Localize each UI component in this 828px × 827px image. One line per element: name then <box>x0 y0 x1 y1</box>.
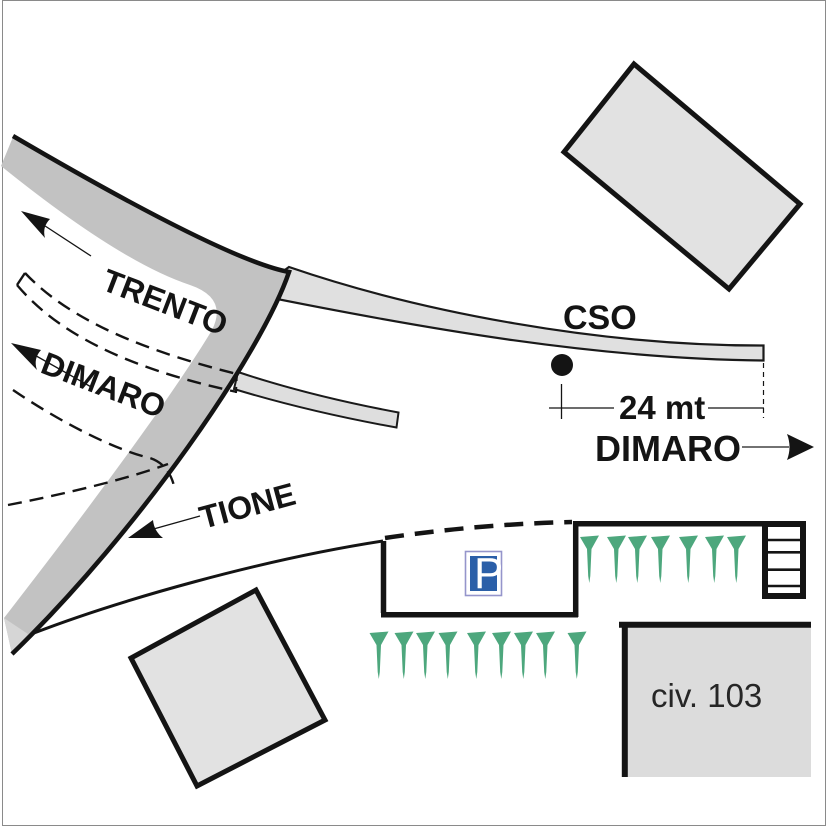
svg-text:CSO: CSO <box>563 299 637 337</box>
svg-text:civ. 103: civ. 103 <box>651 677 762 714</box>
svg-text:DIMARO: DIMARO <box>595 428 741 469</box>
svg-text:P: P <box>474 549 503 598</box>
svg-text:24 mt: 24 mt <box>619 389 705 426</box>
